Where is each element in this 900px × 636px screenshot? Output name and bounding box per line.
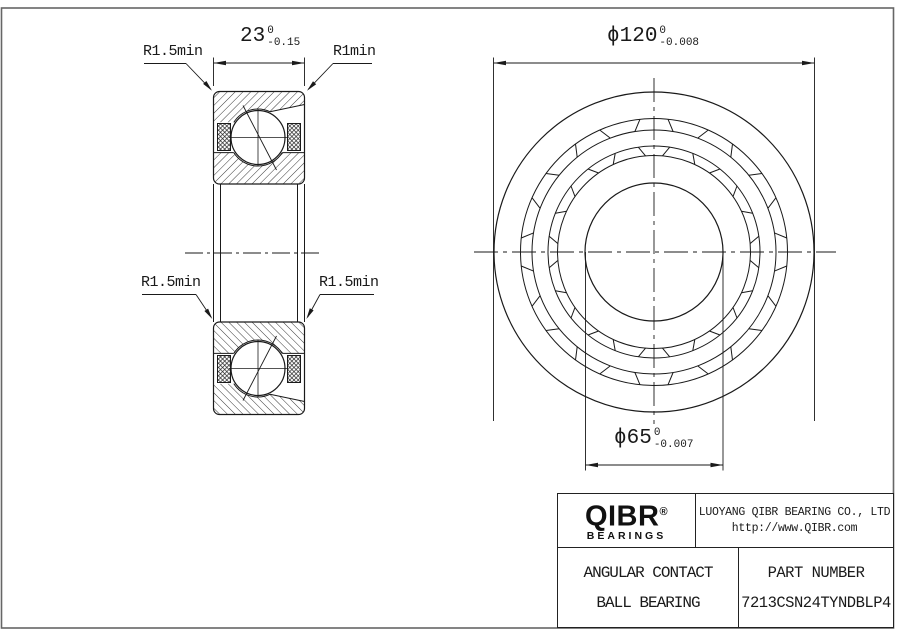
engineering-drawing: 23 0 -0.15 ϕ120 0 -0.008 ϕ65 0 -0.007 R1… bbox=[0, 0, 900, 636]
logo-subtitle: BEARINGS bbox=[587, 530, 666, 542]
od-dimension-text: ϕ120 0 -0.008 bbox=[607, 26, 699, 49]
product-line1: ANGULAR CONTACT bbox=[583, 558, 712, 588]
logo-wordmark: QIBR® bbox=[585, 499, 668, 530]
bore-symbol: ϕ bbox=[614, 428, 627, 449]
width-tolerance: 0 -0.15 bbox=[267, 26, 300, 49]
front-view bbox=[474, 58, 836, 471]
od-symbol: ϕ bbox=[607, 26, 620, 47]
product-description: ANGULAR CONTACT BALL BEARING bbox=[558, 548, 739, 627]
chamfer-label-top-right: R1min bbox=[333, 44, 376, 60]
od-tolerance: 0 -0.008 bbox=[659, 26, 699, 49]
title-block: QIBR® BEARINGS LUOYANG QIBR BEARING CO.,… bbox=[557, 493, 894, 628]
width-value: 23 bbox=[240, 26, 265, 47]
cage-right bbox=[288, 124, 301, 151]
width-dimension-text: 23 0 -0.15 bbox=[240, 26, 300, 49]
title-block-bottom-row: ANGULAR CONTACT BALL BEARING PART NUMBER… bbox=[558, 548, 893, 627]
product-line2: BALL BEARING bbox=[596, 588, 699, 618]
section-top bbox=[214, 92, 305, 185]
chamfer-label-mid-right: R1.5min bbox=[319, 275, 379, 291]
chamfer-label-top-left: R1.5min bbox=[143, 44, 203, 60]
registered-mark: ® bbox=[659, 506, 668, 518]
section-bottom bbox=[214, 322, 305, 415]
part-number-value: 7213CSN24TYNDBLP4 bbox=[741, 588, 891, 618]
title-block-top-row: QIBR® BEARINGS LUOYANG QIBR BEARING CO.,… bbox=[558, 494, 893, 548]
bore-value: 65 bbox=[627, 428, 652, 449]
width-dimension bbox=[214, 58, 305, 87]
od-value: 120 bbox=[620, 26, 658, 47]
bore-tolerance: 0 -0.007 bbox=[654, 428, 694, 451]
company-website: http://www.QIBR.com bbox=[732, 521, 857, 537]
part-number-cell: PART NUMBER 7213CSN24TYNDBLP4 bbox=[739, 548, 893, 627]
part-number-label: PART NUMBER bbox=[768, 558, 865, 588]
cage-left bbox=[218, 124, 231, 151]
chamfer-label-mid-left: R1.5min bbox=[141, 275, 201, 291]
brand-logo: QIBR® BEARINGS bbox=[558, 494, 696, 547]
bore-dimension-text: ϕ65 0 -0.007 bbox=[614, 428, 693, 451]
company-name: LUOYANG QIBR BEARING CO., LTD bbox=[699, 505, 890, 521]
cross-section-view bbox=[142, 58, 374, 415]
company-info: LUOYANG QIBR BEARING CO., LTD http://www… bbox=[696, 494, 893, 547]
